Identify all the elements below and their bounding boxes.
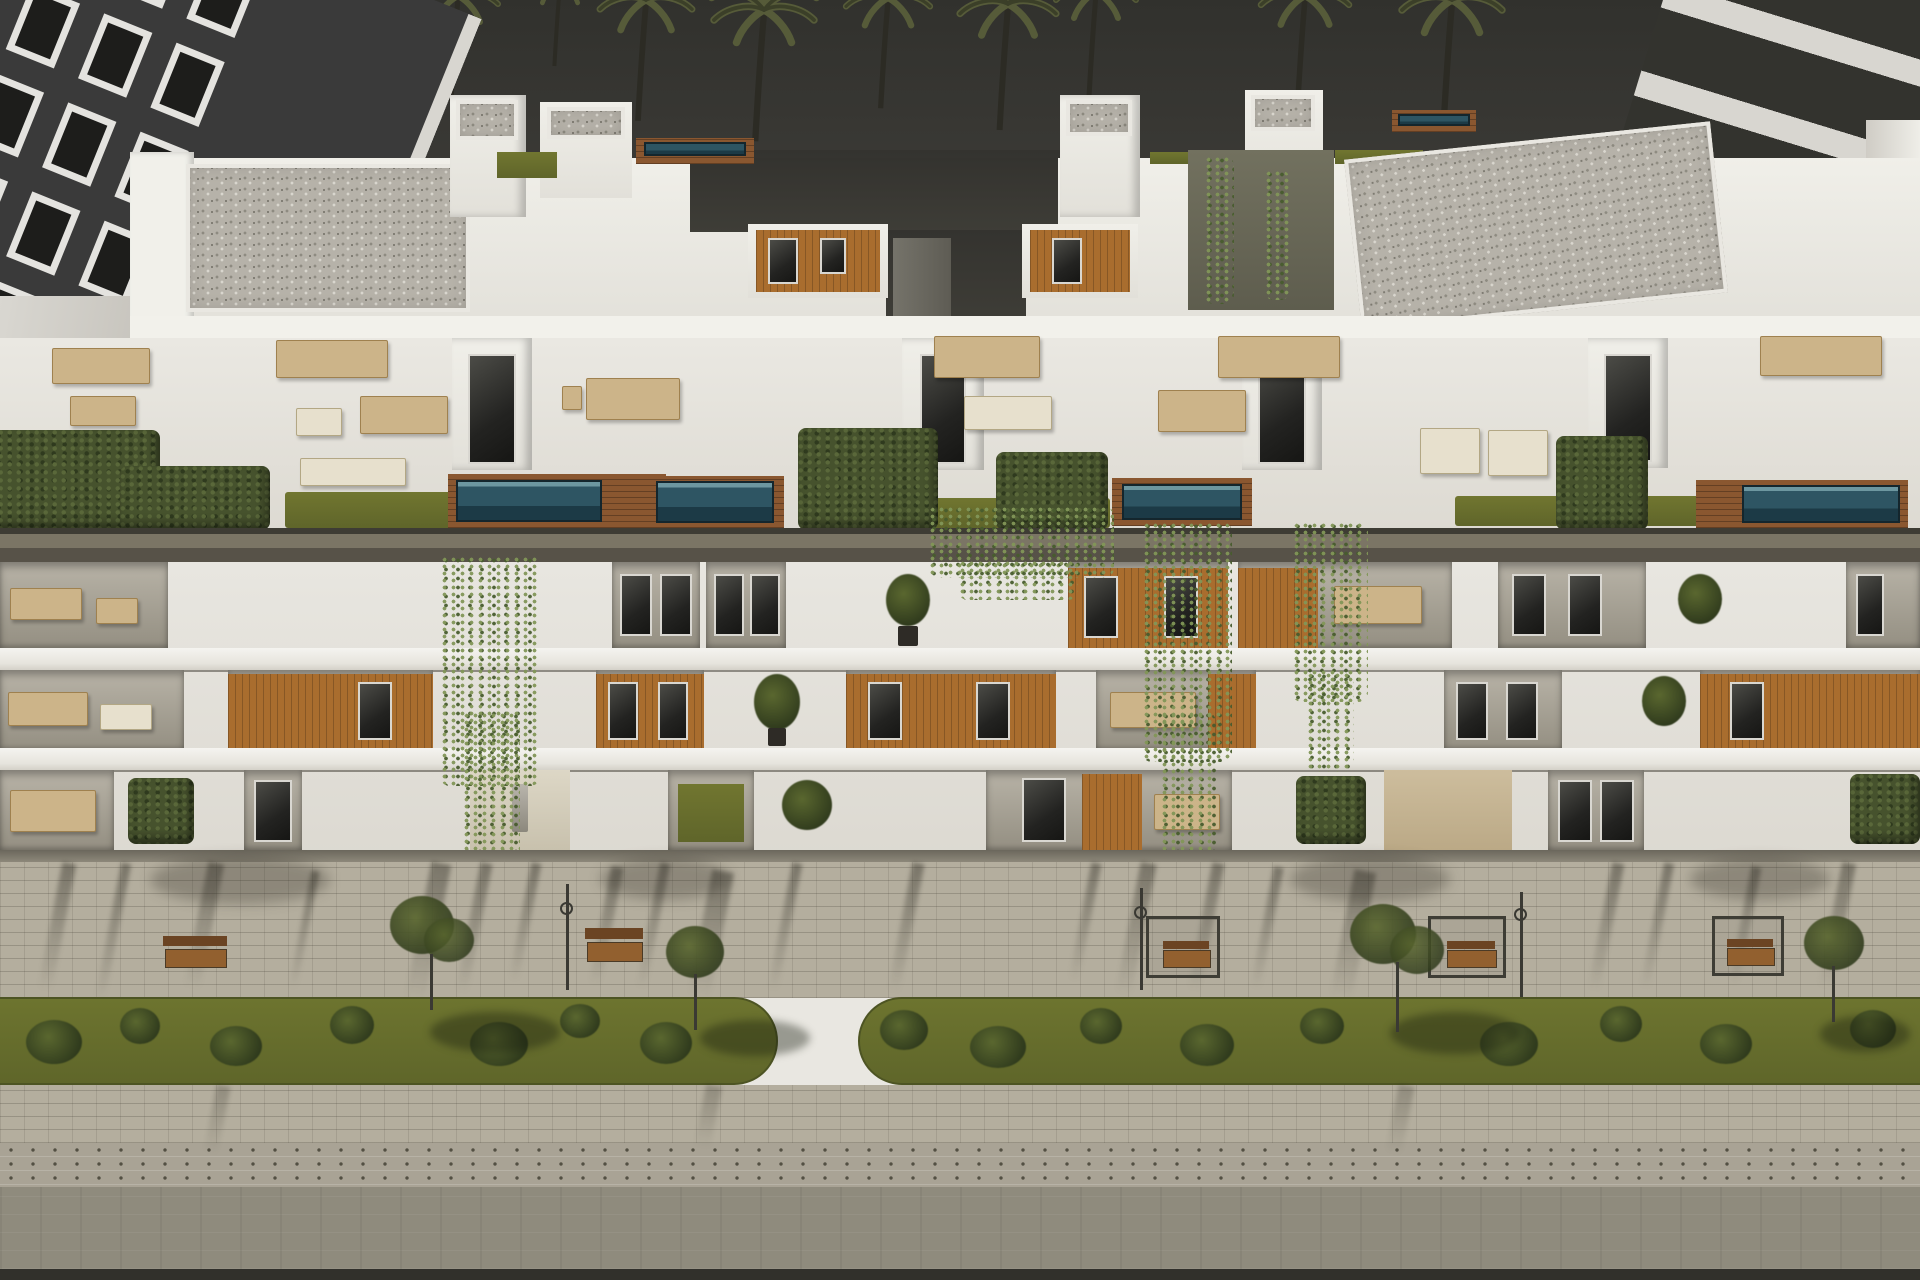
window bbox=[6, 191, 80, 275]
street-tree bbox=[1350, 900, 1450, 1040]
glass-door bbox=[1022, 778, 1066, 842]
terrace-furniture bbox=[556, 350, 706, 436]
window bbox=[42, 102, 116, 186]
balcony-furniture bbox=[10, 588, 82, 620]
bench-back bbox=[1727, 939, 1773, 947]
dining-set bbox=[10, 790, 96, 832]
ivy-wall bbox=[1188, 150, 1334, 310]
window bbox=[1568, 574, 1602, 636]
plunge-pool bbox=[1122, 484, 1242, 520]
dining-table bbox=[1158, 390, 1246, 432]
bench-back bbox=[1447, 941, 1495, 949]
patio-lawn bbox=[678, 784, 744, 842]
window bbox=[658, 682, 688, 740]
shrub bbox=[1600, 1006, 1642, 1042]
window bbox=[820, 238, 846, 274]
bench-seat bbox=[1163, 950, 1211, 968]
window bbox=[750, 574, 780, 636]
facade bbox=[0, 562, 1920, 862]
balcony bbox=[228, 670, 433, 750]
window bbox=[1052, 238, 1082, 284]
pergola-seat bbox=[1146, 916, 1220, 978]
balcony bbox=[612, 562, 700, 648]
shrub bbox=[560, 1004, 600, 1038]
table bbox=[70, 396, 136, 426]
lounger bbox=[1488, 430, 1548, 476]
window bbox=[0, 162, 8, 246]
glass-door bbox=[468, 354, 516, 464]
sofa bbox=[1760, 336, 1882, 376]
window bbox=[0, 73, 44, 157]
ivy bbox=[1204, 156, 1234, 304]
stair-door bbox=[893, 238, 951, 320]
timber-wall bbox=[1082, 774, 1142, 850]
window bbox=[1600, 780, 1634, 842]
shrub bbox=[1700, 1024, 1752, 1064]
roof-lawn bbox=[497, 152, 557, 178]
roof-lap-pool bbox=[644, 142, 746, 156]
bench-seat bbox=[587, 942, 643, 962]
window bbox=[78, 13, 152, 97]
window bbox=[114, 0, 188, 9]
terrace-furniture bbox=[1420, 428, 1550, 482]
patio bbox=[0, 770, 114, 850]
potted-plant bbox=[1642, 676, 1686, 726]
bench-seat bbox=[165, 949, 227, 968]
bench-seat bbox=[1447, 950, 1497, 968]
dotted-paver-band bbox=[0, 1143, 1920, 1187]
pergola-seat bbox=[1712, 916, 1784, 976]
shrub bbox=[782, 780, 832, 830]
window bbox=[620, 574, 652, 636]
window bbox=[186, 0, 260, 38]
gravel-roof bbox=[186, 164, 470, 312]
balcony-plant bbox=[1634, 674, 1694, 746]
architectural-rendering bbox=[0, 0, 1920, 1280]
chair bbox=[562, 386, 582, 410]
lounger-pair bbox=[300, 458, 406, 486]
plunge-pool bbox=[656, 481, 774, 523]
bench bbox=[585, 928, 643, 972]
hedge bbox=[120, 466, 270, 530]
balcony bbox=[706, 562, 786, 648]
potted-plant bbox=[754, 674, 800, 730]
sky-gap bbox=[690, 158, 1058, 232]
penthouse-box bbox=[1022, 224, 1138, 298]
terrace-furniture bbox=[1760, 336, 1910, 406]
lamp-head bbox=[1514, 908, 1527, 921]
plunge-pool bbox=[1742, 485, 1900, 523]
terrace-furniture bbox=[276, 336, 466, 448]
vine-cascade bbox=[462, 712, 520, 862]
terrace-furniture bbox=[1158, 336, 1358, 448]
street-tree bbox=[660, 926, 744, 1036]
penthouse-box bbox=[748, 224, 888, 298]
balcony bbox=[1700, 670, 1920, 750]
window bbox=[768, 238, 798, 284]
plunge-pool bbox=[456, 480, 602, 522]
patio bbox=[762, 770, 904, 850]
vine-cascade bbox=[1306, 672, 1354, 772]
window bbox=[1558, 780, 1592, 842]
potted-plant bbox=[1678, 574, 1722, 624]
dining-table bbox=[360, 396, 448, 434]
lounger bbox=[1420, 428, 1480, 474]
floor-slab bbox=[0, 748, 1920, 770]
tree-trunk bbox=[1396, 962, 1399, 1032]
patio bbox=[244, 770, 302, 850]
vine-cascade bbox=[1160, 712, 1216, 860]
tree-shadow bbox=[1690, 858, 1830, 900]
timber-wall bbox=[228, 674, 433, 750]
road-edge bbox=[0, 1269, 1920, 1280]
shrub bbox=[970, 1026, 1026, 1068]
bench-back bbox=[1163, 941, 1209, 949]
tower-gravel-top bbox=[547, 107, 625, 139]
table bbox=[96, 598, 138, 624]
lower-pavement bbox=[0, 1085, 1920, 1143]
window bbox=[358, 682, 392, 740]
balcony bbox=[846, 670, 1056, 750]
balcony-plant bbox=[738, 674, 816, 748]
terrace-furniture bbox=[934, 336, 1074, 440]
window bbox=[150, 43, 224, 127]
patio bbox=[668, 770, 754, 850]
tree-shadow bbox=[430, 1012, 560, 1052]
patio-hedge bbox=[128, 778, 194, 844]
dining-table bbox=[586, 378, 680, 420]
sofa bbox=[1218, 336, 1340, 378]
tree-trunk bbox=[694, 974, 697, 1030]
lounger bbox=[296, 408, 342, 436]
shrub bbox=[210, 1026, 262, 1066]
shrub bbox=[1300, 1008, 1344, 1044]
shrub bbox=[26, 1020, 82, 1064]
sofa bbox=[934, 336, 1040, 378]
window bbox=[1856, 574, 1884, 636]
lounger bbox=[964, 396, 1052, 430]
balcony bbox=[0, 670, 184, 750]
window bbox=[608, 682, 638, 740]
tree-trunk bbox=[430, 954, 433, 1010]
tree-canopy bbox=[1804, 916, 1864, 970]
balcony-plant bbox=[1668, 574, 1732, 648]
patio-deck bbox=[1384, 770, 1512, 850]
balcony bbox=[1846, 562, 1920, 648]
roof-parapet bbox=[130, 152, 194, 336]
balcony-furniture bbox=[8, 692, 88, 726]
tree-trunk bbox=[1832, 966, 1835, 1022]
shrub bbox=[330, 1006, 374, 1044]
window bbox=[1506, 682, 1538, 740]
street-lamp bbox=[566, 884, 569, 990]
balcony bbox=[1444, 670, 1562, 750]
bench-back bbox=[585, 928, 643, 939]
plant-pot bbox=[768, 728, 786, 746]
tower-gravel-top bbox=[1066, 100, 1132, 136]
balcony bbox=[0, 562, 168, 648]
plant-pot bbox=[898, 626, 918, 646]
patio-hedge bbox=[1296, 776, 1366, 844]
vine-fringe bbox=[958, 560, 1078, 600]
shrub bbox=[1180, 1024, 1234, 1066]
shrub bbox=[880, 1010, 928, 1050]
bench-back bbox=[163, 936, 227, 946]
floor-slab bbox=[0, 648, 1920, 670]
lamp-head bbox=[560, 902, 573, 915]
shrub bbox=[120, 1008, 160, 1044]
shrub bbox=[1080, 1008, 1122, 1044]
street-tree bbox=[1800, 916, 1886, 1026]
street-lamp bbox=[1140, 888, 1143, 990]
window bbox=[976, 682, 1010, 740]
glass-door bbox=[254, 780, 292, 842]
roadway bbox=[0, 1187, 1920, 1269]
bench bbox=[163, 936, 227, 976]
window bbox=[714, 574, 744, 636]
balcony-plant bbox=[872, 572, 942, 648]
hedge bbox=[1556, 436, 1648, 530]
bench-seat bbox=[1727, 948, 1775, 966]
lamp-head bbox=[1134, 906, 1147, 919]
window bbox=[1512, 574, 1546, 636]
window bbox=[1084, 576, 1118, 638]
window bbox=[660, 574, 692, 636]
potted-plant bbox=[886, 574, 930, 626]
ivy bbox=[1264, 170, 1290, 300]
patio-hedge bbox=[1850, 774, 1920, 844]
window bbox=[1730, 682, 1764, 740]
window bbox=[868, 682, 902, 740]
sofa bbox=[276, 340, 388, 378]
hedge bbox=[798, 428, 938, 530]
street-tree bbox=[390, 896, 480, 1016]
tree-canopy bbox=[666, 926, 724, 978]
sofa bbox=[52, 348, 150, 384]
roof-lap-pool bbox=[1398, 114, 1470, 126]
window bbox=[1456, 682, 1488, 740]
patio bbox=[1548, 770, 1644, 850]
balcony bbox=[1498, 562, 1646, 648]
tree-shadow bbox=[150, 856, 330, 904]
balcony bbox=[596, 670, 704, 750]
tower-gravel-top bbox=[456, 100, 518, 140]
window bbox=[6, 0, 80, 69]
tower-gravel-top bbox=[1251, 95, 1315, 131]
terrace-furniture bbox=[52, 340, 202, 436]
lounger bbox=[100, 704, 152, 730]
